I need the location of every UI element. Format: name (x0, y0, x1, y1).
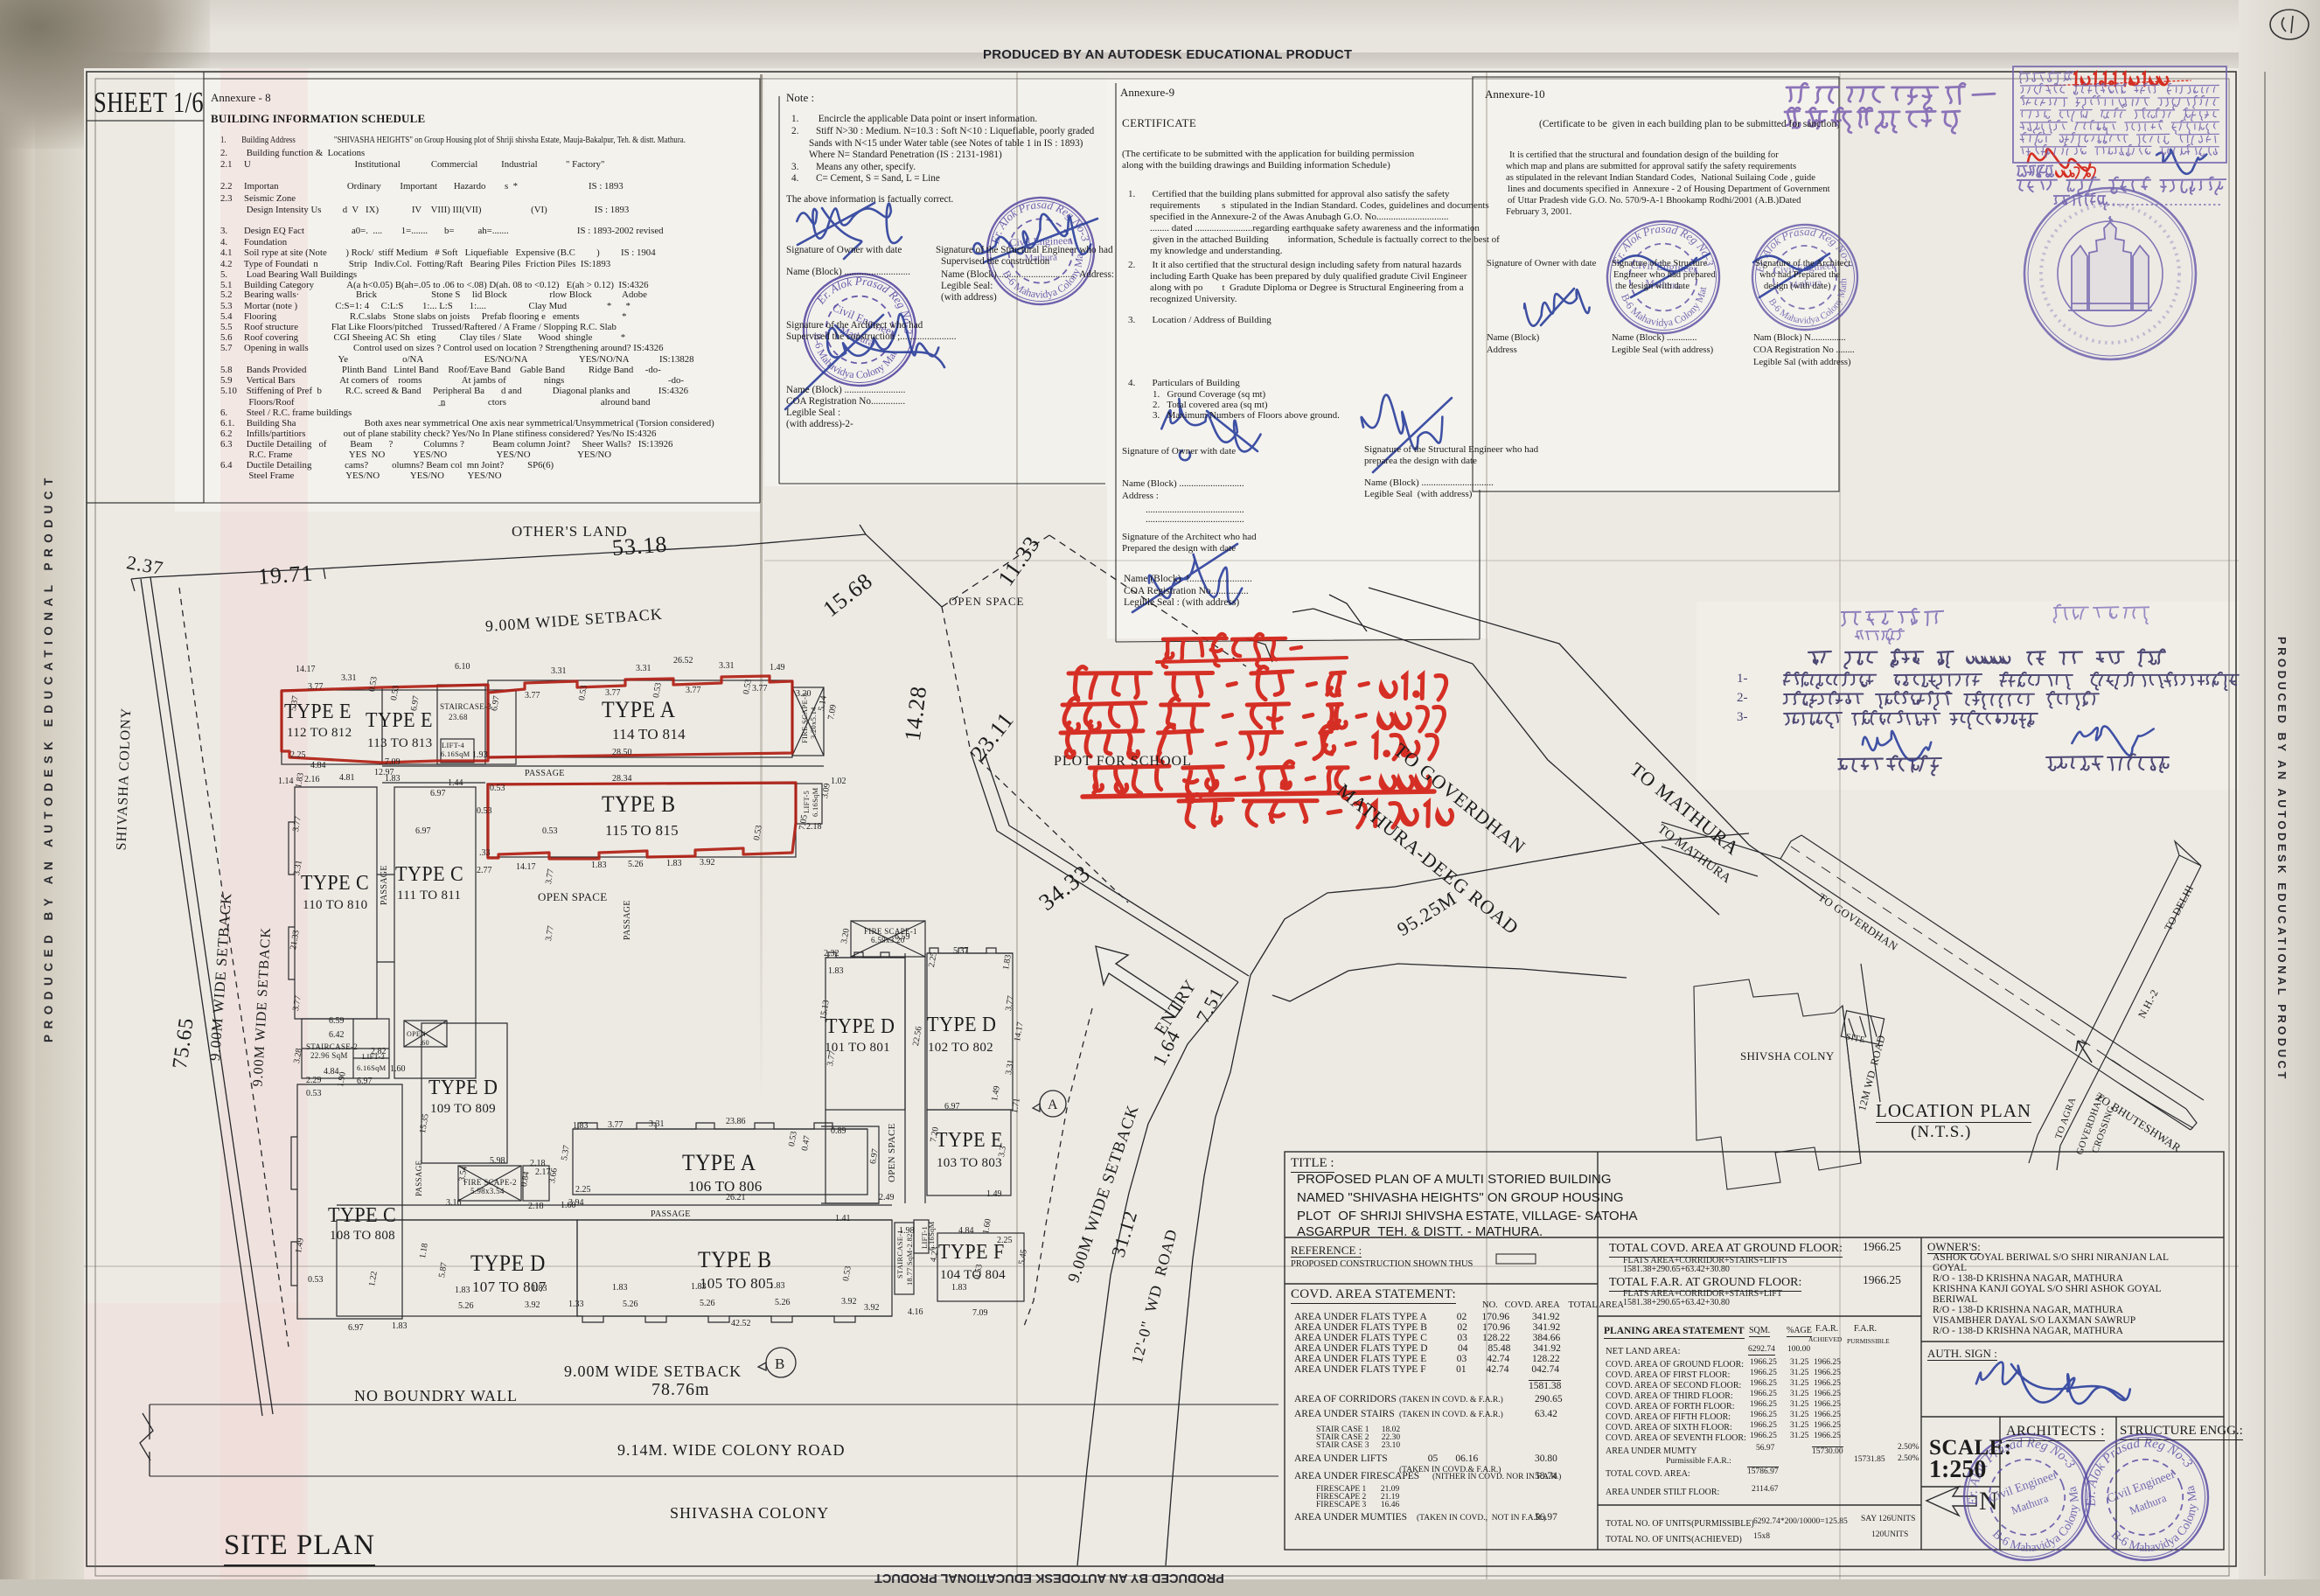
svg-text:1-: 1- (1737, 672, 1748, 686)
svg-text:A: A (1048, 1098, 1058, 1112)
svg-text:B: B (775, 1356, 784, 1372)
svg-text:3-: 3- (1737, 710, 1748, 724)
svg-text:2-: 2- (1737, 691, 1748, 705)
